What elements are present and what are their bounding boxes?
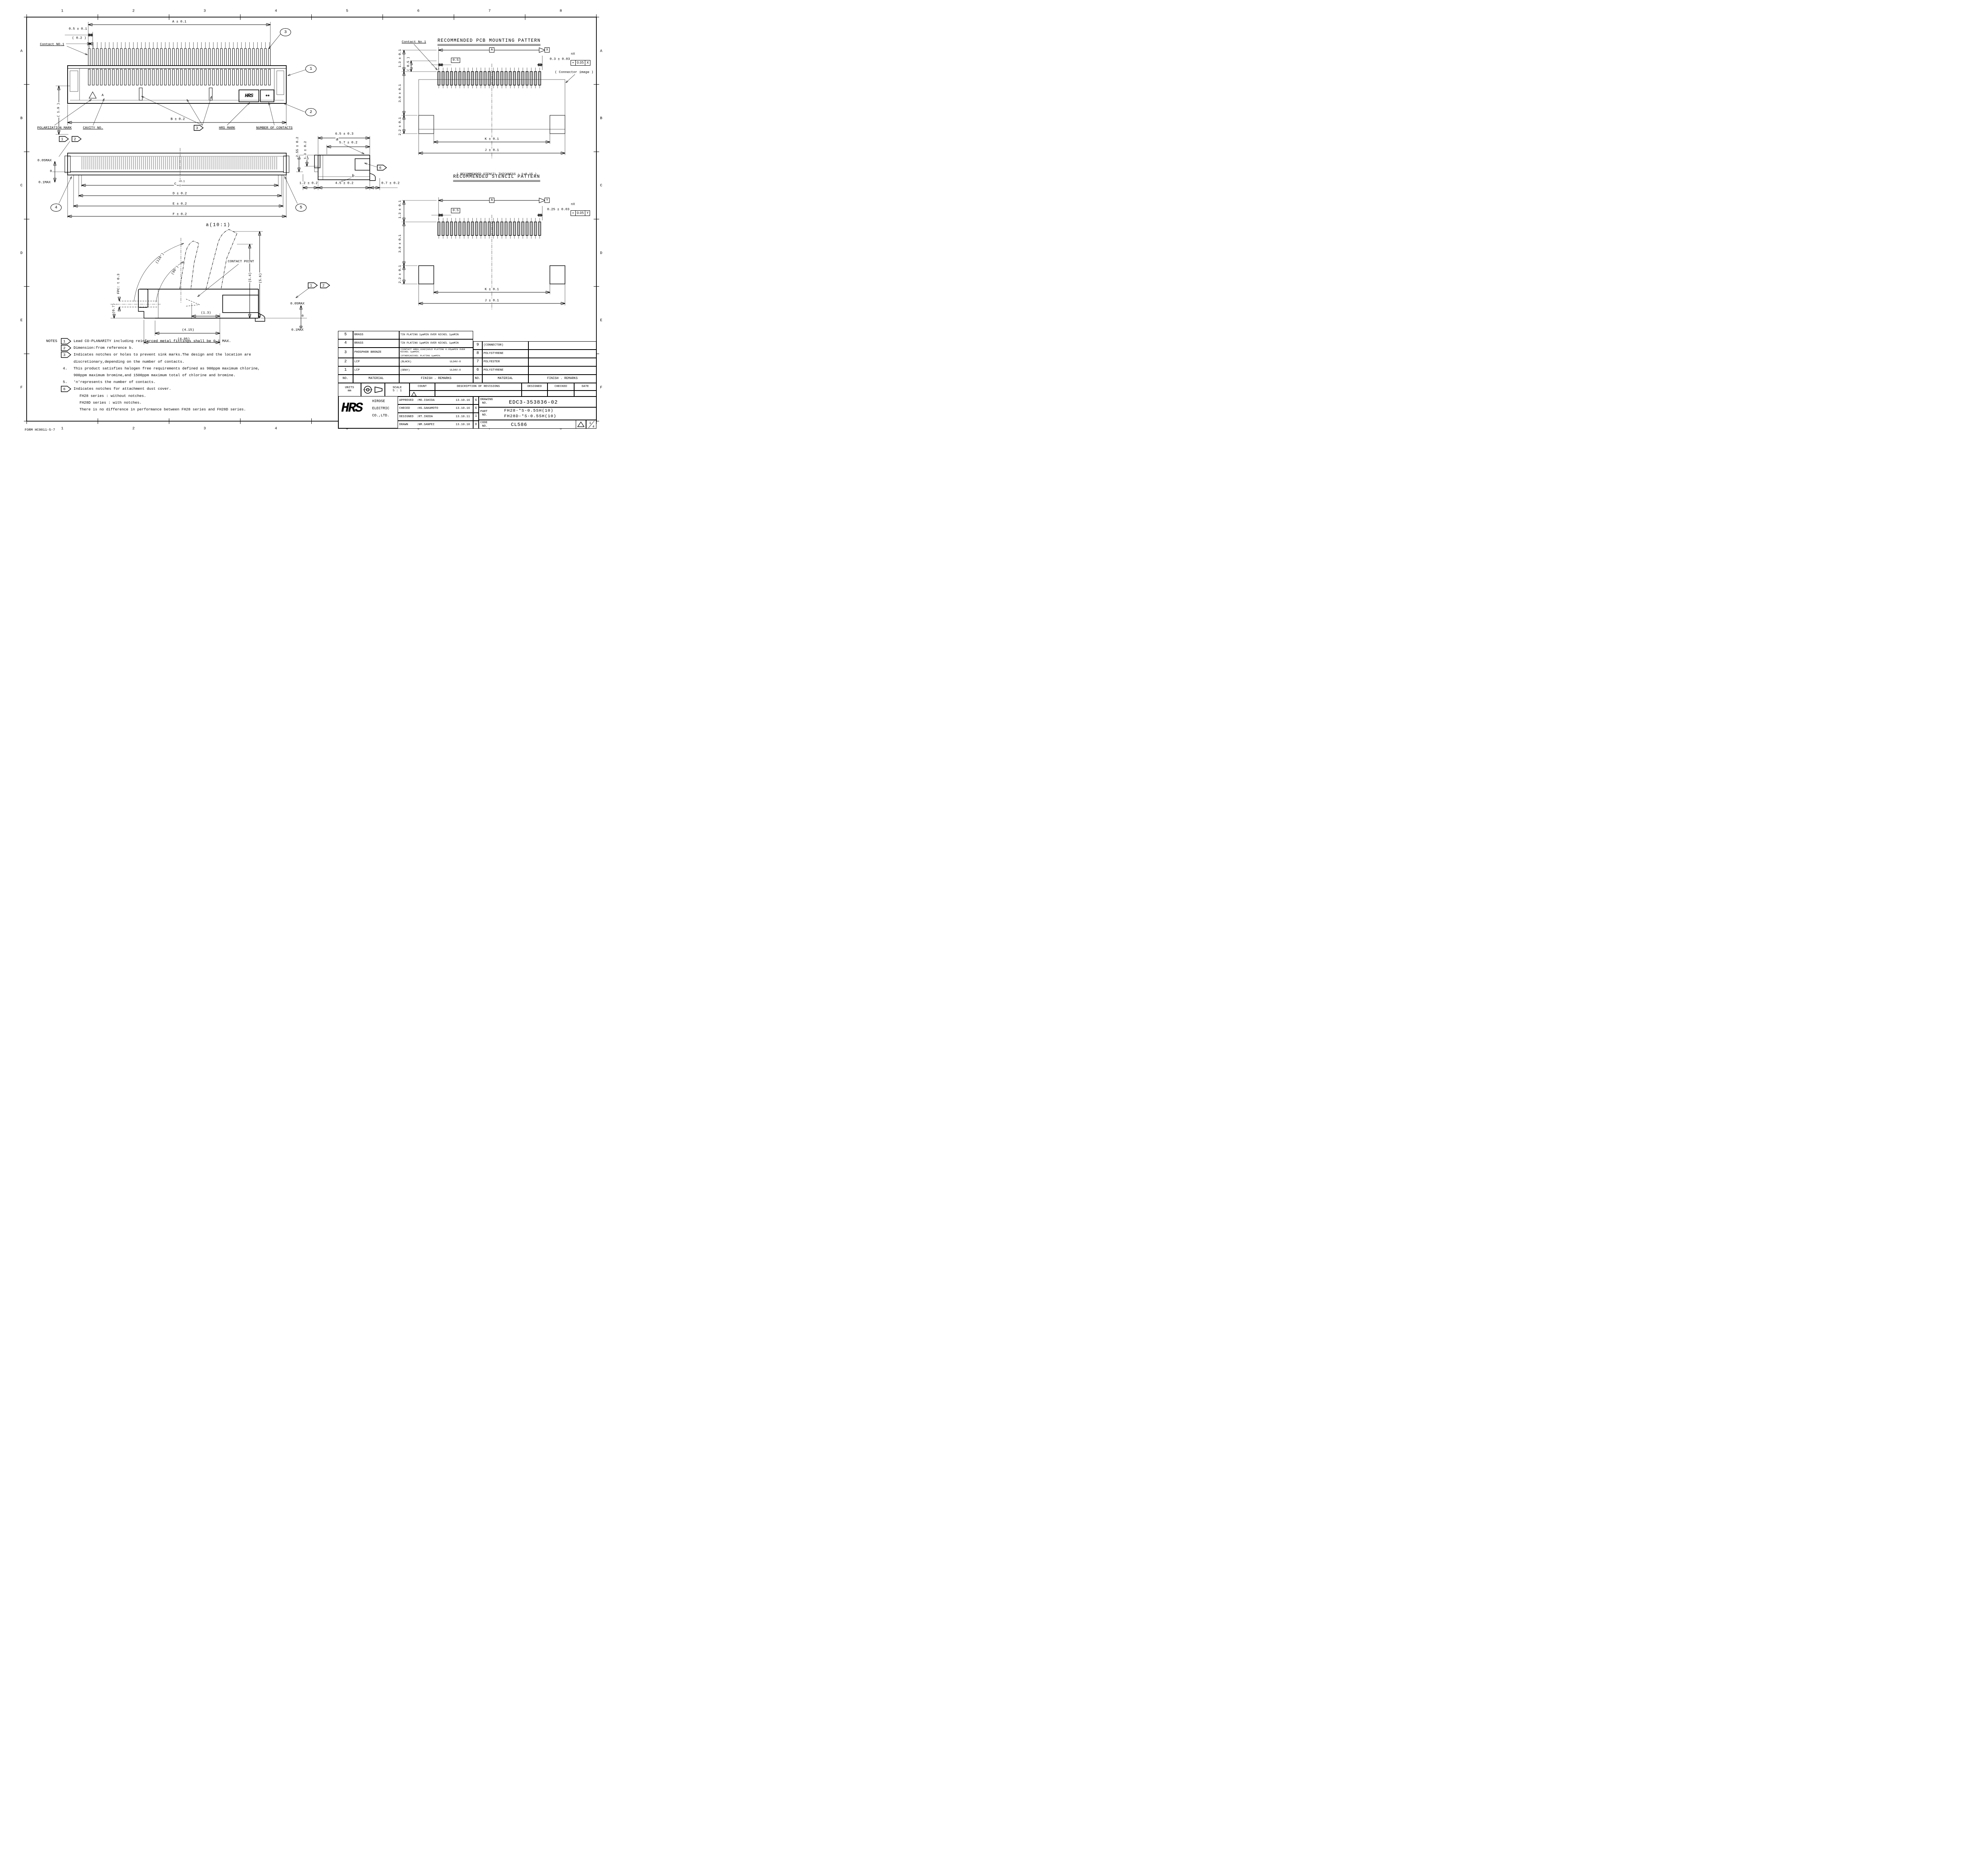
svg-text:6: 6 — [379, 166, 381, 170]
finish-line-1: (CONTACT AREA,LEAD)GOLD PLATING 0.05μmMI… — [400, 348, 472, 353]
balloon-5: 5 — [295, 204, 307, 212]
dim-label: a — [336, 138, 339, 142]
note-tag-2: 2 — [320, 282, 330, 288]
svg-text:1: 1 — [310, 284, 312, 288]
finish-text: (BLACK)UL94V-0 — [400, 361, 472, 363]
sheet-triangle-icon — [577, 422, 584, 430]
approval-role: CHECED — [399, 407, 410, 410]
zone-col-label: 8 — [560, 9, 562, 13]
finish-cell — [528, 341, 596, 350]
hrs-logo: HRS — [341, 401, 362, 416]
finish-text: TIN PLATING 1μmMIN OVER NICKEL 1μmMIN — [400, 342, 458, 345]
part-no-value-1: FH28-*S-0.5SH(10) — [504, 408, 553, 413]
part-no-cell: 4 — [338, 339, 353, 348]
svg-text:3: 3 — [63, 354, 65, 358]
note-tag-1: 1 — [61, 338, 71, 344]
zone-row-label: E — [600, 318, 602, 322]
feature-control-frame: ⌖0.05Y — [571, 210, 590, 216]
part-no-cell: 1 — [338, 366, 353, 375]
note-text: 'n'represents the number of contacts. — [74, 380, 155, 384]
note-text: FH28 series : without notches. — [80, 394, 146, 398]
dim-label: F ± 0.2 — [172, 212, 187, 216]
dim-label: 2.2 ± 0.1 — [398, 117, 402, 136]
note-tag-1: 1 — [308, 282, 318, 288]
balloon-1: 1 — [305, 65, 316, 73]
dim-label: (0.7) — [112, 303, 116, 314]
fcf-cell: X — [585, 60, 590, 66]
svg-text:2: 2 — [322, 284, 324, 288]
dim-label: 0.1MAX — [291, 328, 304, 332]
stencil-pattern-title: RECOMMENDED STENCIL PATTERN — [453, 164, 540, 192]
finish-cell — [528, 350, 596, 358]
approval-date: 13.10.10 — [456, 423, 470, 427]
finish-cell: (CONTACT AREA,LEAD)GOLD PLATING 0.05μmMI… — [399, 348, 473, 358]
dim-label: 0.3 ± 0.03 — [549, 57, 570, 61]
finish-rating: UL94V-0 — [450, 361, 461, 363]
zone-row-label: B — [600, 116, 602, 120]
material-cell: BRASS — [353, 331, 399, 339]
fcf-cell: 0.05 — [575, 60, 586, 66]
approval-date: 13.10.16 — [456, 399, 470, 402]
fcf-cell: Y — [585, 210, 590, 216]
date-header: DATE — [574, 383, 596, 391]
projection-cell — [361, 383, 385, 396]
note-text: Dimension:from reference b. — [74, 346, 134, 350]
dim-label: CAVITY NO. — [82, 126, 103, 130]
finish-cell: (GRAY)UL94V-0 — [399, 366, 473, 375]
zone-col-label: 6 — [417, 9, 419, 13]
approval-name: :MO.ISHIDA — [417, 399, 435, 402]
note-text: There is no difference in performance be… — [80, 407, 246, 412]
datum-box-label: 0.5 — [451, 208, 460, 213]
checked-header-entry — [547, 391, 574, 396]
material-cell: LCP — [353, 358, 399, 366]
checked-header: CHECKED — [547, 383, 574, 391]
dim-label: J ± 0.1 — [484, 148, 499, 152]
revisions-header-entry — [435, 391, 522, 396]
approval-role: DESIGNED — [399, 415, 414, 419]
dim-label: +0.1 — [178, 180, 185, 183]
svg-text:6: 6 — [63, 388, 65, 392]
material-cell: LCP — [353, 366, 399, 375]
note-tag-3: 3 — [61, 352, 71, 358]
zone-col-label: 5 — [346, 9, 348, 13]
svg-text:2: 2 — [63, 346, 65, 350]
zone-row-label: B — [20, 116, 23, 120]
note-tag-2: 2 — [72, 136, 82, 142]
header-finish: FINISH . REMARKS — [399, 375, 473, 383]
dim-label: (5.6) — [259, 273, 262, 284]
dim-label: nX — [571, 52, 575, 56]
part-no-cell: 8 — [473, 350, 482, 358]
notes-heading: NOTES — [46, 339, 57, 343]
zone-col-label: 2 — [132, 9, 135, 13]
zone-row-label: A — [20, 49, 23, 53]
dim-label: (5.4) — [248, 272, 252, 283]
header-finish: FINISH . REMARKS — [528, 375, 596, 383]
datum-box-label: X — [544, 47, 549, 52]
zone-row-label: D — [20, 251, 23, 255]
part-no-cell: 5 — [338, 331, 353, 339]
dim-label: K ± 0.1 — [484, 288, 499, 291]
rev-num-cell: 6 — [473, 396, 479, 404]
dim-label: Contact NO.1 — [39, 43, 64, 46]
code-no-value: CL586 — [511, 422, 527, 428]
balloon-3: 3 — [280, 28, 291, 36]
finish-text: (GRAY)UL94V-0 — [400, 369, 472, 372]
drawing-no-label: DRAWING NO. — [480, 398, 493, 405]
finish-text: (CONTACT AREA,LEAD)GOLD PLATING 0.05μmMI… — [400, 348, 472, 357]
dim-label: 0.25 ± 0.03 — [547, 208, 570, 211]
zone-row-label: C — [20, 183, 23, 188]
note-text: discretionary,depending on the number of… — [74, 360, 184, 364]
note-tag-3: 3 — [194, 125, 204, 131]
dim-label: B ± 0.2 — [170, 117, 185, 121]
dim-label: 4.5 ± 0.2 — [335, 181, 354, 185]
zone-col-label: 1 — [61, 426, 64, 431]
dim-label: 1.3 ± 0.1 — [398, 200, 402, 219]
dim-label: Contact No.1 — [401, 40, 426, 44]
finish-line-2: (OTHER)NICKEL PLATING 1μmMIN. — [400, 355, 472, 357]
dim-label: nX — [571, 202, 575, 206]
dim-label: (1.3) — [200, 311, 212, 315]
zone-col-label: 4 — [275, 9, 277, 13]
scale-value: 5 : 1 — [393, 390, 402, 393]
units-cell: UNITSmm — [338, 383, 361, 396]
part-no-cell: 3 — [338, 348, 353, 358]
dim-label: 0.7 ± 0.2 — [381, 181, 400, 185]
rev-num-cell: 0 — [473, 421, 479, 429]
dim-label: ( 1.9 ) — [57, 103, 60, 118]
dim-label: 2.55 ± 0.2 — [296, 136, 299, 157]
dim-label: 1.3 ± 0.2 — [304, 141, 307, 160]
dim-label: J ± 0.1 — [484, 299, 499, 302]
dim-label: A — [101, 93, 104, 97]
dim-label: 3.9 ± 0.1 — [398, 84, 402, 103]
scale-cell: SCALE5 : 1 — [385, 383, 410, 396]
finish-cell: (BLACK)UL94V-0 — [399, 358, 473, 366]
dim-label: 6.5 ± 0.3 — [335, 132, 354, 136]
zone-row-label: E — [20, 318, 23, 322]
dim-label: ( Connector image ) — [555, 70, 594, 74]
zone-col-label: 3 — [204, 9, 206, 13]
dim-label: C — [174, 182, 177, 186]
zone-row-label: C — [600, 183, 602, 188]
material-cell: BRASS — [353, 339, 399, 348]
note-text: This product satisfies halogen free requ… — [74, 366, 260, 371]
dim-label: 0.5 ± 0.1 — [68, 27, 87, 31]
sheet-no-top: 1 — [589, 422, 591, 425]
note-text: FH28D series : with notches. — [80, 400, 142, 405]
material-cell: POLYSTYRENE — [482, 350, 528, 358]
approval-role: DRAWN — [399, 423, 408, 427]
rev-num-cell: 1 — [473, 413, 479, 421]
note-tag-1: 1 — [59, 136, 69, 142]
part-no-cell: 9 — [473, 341, 482, 350]
dim-label: 1.3 ± 0.1 — [398, 49, 402, 68]
zone-row-label: F — [20, 385, 23, 390]
fcf-cell: 0.05 — [575, 210, 586, 216]
material-cell: POLYESTER — [482, 358, 528, 366]
material-cell: PHOSPHOR BRONZE — [353, 348, 399, 358]
hrs-mark: HRS — [245, 93, 253, 98]
finish-cell: TIN PLATING 1μmMIN OVER NICKEL 1μmMIN — [399, 331, 473, 339]
designed-header: DESIGNED — [522, 383, 547, 391]
drawing-no-value: EDC3-353836-02 — [509, 399, 558, 405]
zone-row-label: A — [600, 49, 602, 53]
approval-role: APPROVED — [399, 399, 414, 402]
count-header: COUNT — [410, 383, 435, 391]
dim-label: (4.15) — [182, 328, 195, 332]
sheet-fraction: 14 — [586, 420, 596, 429]
units-value: mm — [348, 390, 351, 393]
dim-label: A ± 0.1 — [172, 20, 187, 23]
part-no-label: PART NO. — [480, 410, 487, 417]
zone-col-label: 2 — [132, 426, 135, 431]
note-text: Indicates notches or holes to prevent si… — [74, 352, 251, 357]
dim-label: HRS MARK — [219, 126, 236, 130]
dim-label: b — [351, 174, 355, 179]
header-no: NO. — [473, 375, 482, 383]
balloon-2: 2 — [305, 108, 316, 116]
note-text: 900ppm maximum bromine,and 1500ppm maxim… — [74, 373, 235, 377]
datum-box-label: 0.5 — [451, 58, 460, 63]
material-cell: POLYSTYRENE — [482, 366, 528, 375]
finish-cell — [528, 366, 596, 375]
note-tag-6: 6 — [377, 165, 387, 171]
balloon-4: 4 — [50, 204, 62, 212]
approval-date: 13.10.16 — [456, 407, 470, 410]
dim-label: NUMBER OF CONTACTS — [256, 126, 293, 130]
datum-box-label: A — [489, 198, 494, 203]
svg-text:2: 2 — [74, 137, 76, 141]
dim-label: 0 — [49, 169, 52, 173]
approval-name: :NM.SANPEI — [417, 423, 435, 427]
feature-control-frame: ⌖0.05X — [571, 60, 590, 66]
zone-col-label: 7 — [488, 9, 491, 13]
dim-label: 2.2 ± 0.1 — [398, 265, 402, 284]
company-name-line: ELECTRIC — [372, 406, 389, 411]
dim-label: FPC: t 0.3 — [117, 273, 120, 294]
dim-label: D ± 0.2 — [172, 192, 187, 195]
zone-row-label: F — [600, 385, 602, 390]
dim-label: 5.7 ± 0.2 — [339, 141, 358, 144]
date-header-entry — [574, 391, 596, 396]
dim-label: CONTACT POINT — [227, 260, 254, 263]
dim-label: POLARIZATION MARK — [37, 126, 72, 130]
sheet-no-bottom: 4 — [592, 425, 594, 429]
zone-col-label: 1 — [61, 9, 64, 13]
designed-header-entry — [522, 391, 547, 396]
third-angle-projection-icon — [363, 385, 383, 395]
dim-label: 0.05MAX — [290, 302, 305, 305]
dim-label: ( 0.2 ) — [72, 36, 87, 40]
dim-label: ( 0.5 ) — [407, 56, 410, 72]
dim-label: E ± 0.2 — [172, 202, 187, 206]
approval-name: :RT.IKEDA — [417, 415, 433, 419]
part-no-value-2: FH28D-*S-0.5SH(10) — [504, 414, 556, 419]
code-no-label: CODE NO. — [480, 421, 487, 428]
note-tag-2: 2 — [61, 345, 71, 351]
rev-num-cell: 6 — [473, 404, 479, 412]
finish-text: TIN PLATING 1μmMIN OVER NICKEL 1μmMIN — [400, 334, 458, 336]
header-no: NO. — [338, 375, 353, 383]
dim-label: 0 — [179, 185, 181, 187]
svg-text:3: 3 — [196, 126, 198, 130]
dim-label: 0.05MAX — [37, 159, 52, 162]
finish-color: (BLACK) — [400, 361, 412, 363]
header-material: MATERIAL — [353, 375, 399, 383]
form-number: FORM HC0011-5-7 — [25, 428, 55, 432]
zone-col-label: 4 — [275, 426, 277, 431]
note-text: Lead CO-PLANARITY including reinforced m… — [74, 339, 231, 343]
approval-date: 13.10.11 — [456, 415, 470, 419]
dim-label: 1.2 ± 0.2 — [299, 181, 318, 185]
svg-text:1: 1 — [63, 340, 65, 344]
finish-cell: TIN PLATING 1μmMIN OVER NICKEL 1μmMIN — [399, 339, 473, 348]
dim-label: 0 — [301, 314, 304, 318]
drawing-sheet: RECOMMENDED PCB MOUNTING PATTERN RECOMME… — [0, 0, 621, 439]
dim-label: ✱✱ — [265, 94, 270, 97]
note-number: 5. — [63, 380, 67, 384]
dim-label: 3.9 ± 0.1 — [398, 234, 402, 253]
finish-color: (GRAY) — [400, 369, 410, 372]
datum-box-label: A — [489, 47, 494, 52]
stencil-thickness-note: ( RECOMMENDED STENCIL THICKNESS : t=0.15… — [456, 173, 537, 176]
zone-col-label: 3 — [204, 426, 206, 431]
header-material: MATERIAL — [482, 375, 528, 383]
finish-rating: UL94V-0 — [450, 369, 461, 372]
part-no-cell: 2 — [338, 358, 353, 366]
note-tag-6: 6 — [61, 386, 71, 392]
note-text: Indicates notches for attachment dust co… — [74, 387, 171, 391]
dim-label: 0.1MAX — [38, 181, 51, 184]
revisions-header: DESCRIPTION OF REVISIONS — [435, 383, 522, 391]
material-cell: (CONNECTOR) — [482, 341, 528, 350]
note-number: 4. — [63, 366, 67, 371]
part-no-cell: 6 — [473, 366, 482, 375]
finish-cell — [528, 358, 596, 366]
svg-text:1: 1 — [61, 137, 63, 141]
part-no-cell: 7 — [473, 358, 482, 366]
revision-triangle-icon — [411, 391, 417, 396]
approval-name: :HS.SAKAMOTO — [417, 407, 438, 410]
dim-label: K ± 0.1 — [484, 137, 499, 141]
company-name-line: HIROSE — [372, 399, 385, 404]
datum-box-label: Y — [544, 198, 549, 203]
zone-row-label: D — [600, 251, 602, 255]
dim-label: a(10:1) — [206, 223, 231, 228]
company-name-line: CO.,LTD. — [372, 414, 389, 418]
